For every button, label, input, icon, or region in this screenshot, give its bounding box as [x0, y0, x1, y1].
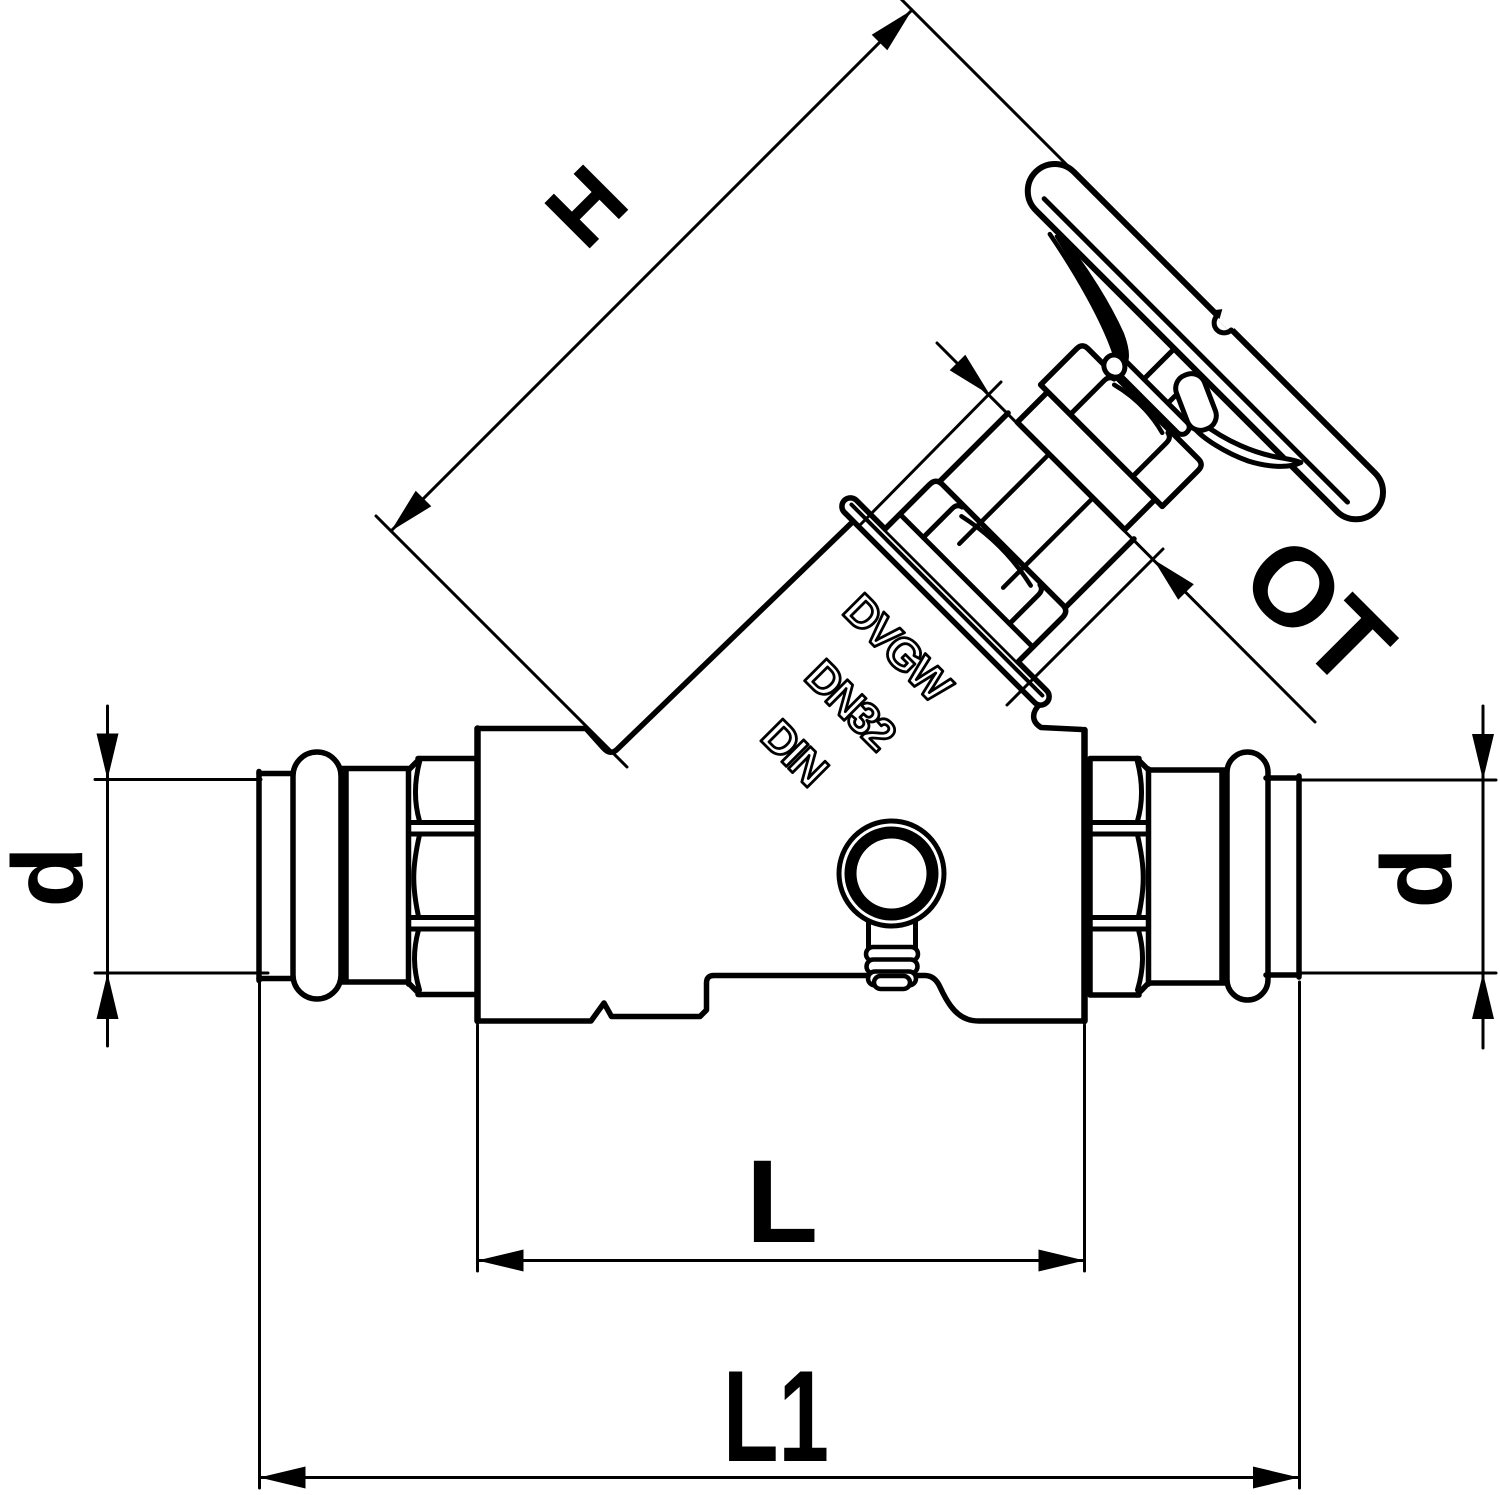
svg-text:L: L [746, 1136, 818, 1268]
svg-text:d: d [1361, 847, 1473, 908]
svg-text:d: d [0, 846, 104, 907]
svg-text:L1: L1 [723, 1343, 829, 1489]
